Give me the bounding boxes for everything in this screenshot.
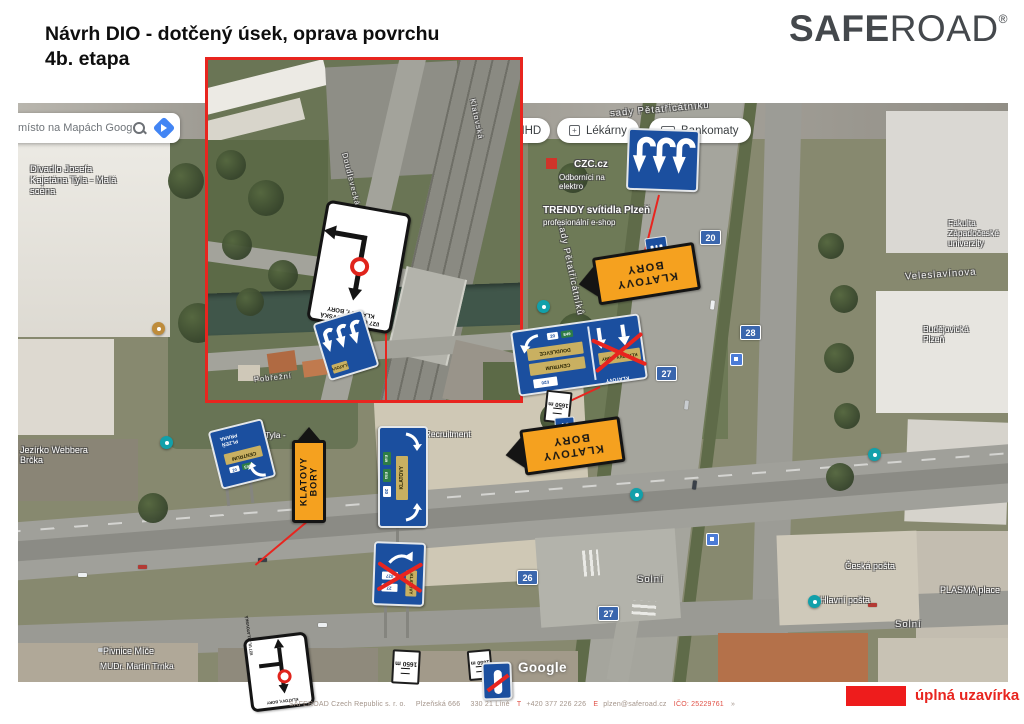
poi-pin-icon[interactable] [537, 300, 550, 313]
title-line1: Návrh DIO - dotčený úsek, oprava povrchu [45, 22, 439, 47]
poi-label-hlavni-posta[interactable]: Hlavní pošta [820, 595, 870, 605]
saferoad-logo: SAFEROAD® [789, 8, 1008, 50]
street-label-solni-1: Solní [637, 575, 664, 586]
poi-label-fakulta[interactable]: Fakulta Západočeské univerzity [948, 219, 1008, 248]
legend-closure-swatch [846, 686, 906, 706]
transit-stop-icon[interactable] [706, 533, 719, 546]
street-label-solni-2: Solní [895, 620, 922, 631]
footer-phone-prefix: T [517, 701, 521, 708]
route-shield-27b: 27 [598, 606, 619, 621]
distance-sign-3: 1650 m [391, 649, 421, 684]
poi-label-trnka[interactable]: MUDr. Martin Trnka [100, 662, 174, 672]
detail-inset-map: Doudlevecká Klatovská Pobřežní I/27 UL. … [205, 57, 523, 403]
poi-label-czc[interactable]: CZC.cz [574, 159, 608, 171]
closed-lanes-x-mark [587, 313, 650, 388]
restaurant-pin-icon[interactable] [152, 322, 165, 335]
poi-pin-icon[interactable] [868, 448, 881, 461]
poi-label-pivnice[interactable]: Pivnice Míče [103, 646, 154, 656]
czc-logo [546, 158, 557, 169]
street-label-veleslavinova: Veleslavínova [905, 268, 977, 284]
poi-label-plasma[interactable]: PLASMA place [940, 585, 1000, 595]
poi-label-theater1[interactable]: Divadlo Josefa Kajetána Tyla - Malá scén… [30, 165, 126, 198]
legend-closure-label: úplná uzavírka [915, 687, 1019, 704]
route-shield-28: 28 [740, 325, 761, 340]
footer-email: plzen@saferoad.cz [603, 701, 666, 708]
poi-label-czc-sub: Odborníci na elektro [559, 173, 629, 191]
route-shield-27a: 27 [656, 366, 677, 381]
pharmacy-icon: + [569, 125, 580, 136]
vertical-direction-panel: KLATOVY E49 E53 20 [378, 426, 428, 528]
one-way-end-sign [481, 661, 512, 700]
route-shield-20: 20 [700, 230, 721, 245]
lane-direction-sign-top [626, 128, 700, 192]
footer-phone: +420 377 226 226 [526, 701, 586, 708]
arrow-tip [298, 427, 320, 440]
poi-label-trendy[interactable]: TRENDY svítidla Plzeň [543, 205, 650, 217]
poi-pin-icon[interactable] [630, 488, 643, 501]
title-line2: 4b. etapa [45, 47, 439, 72]
google-search-box[interactable]: místo na Mapách Google [18, 113, 180, 143]
footer-ico: IČO: 25229761 [674, 701, 724, 708]
street-label-pobrezni: Pobřežní [254, 372, 293, 385]
search-input[interactable]: místo na Mapách Google [18, 122, 132, 134]
poi-label-ceska-posta[interactable]: Česká pošta [845, 561, 895, 571]
dio-plan-page: { "colors": {"accent_red":"#e8251f","leg… [0, 0, 1024, 724]
route-shield-26: 26 [517, 570, 538, 585]
directions-icon[interactable] [153, 117, 176, 140]
poi-label-trendy-sub: profesionální e-shop [543, 218, 616, 227]
page-title: Návrh DIO - dotčený úsek, oprava povrchu… [45, 22, 439, 72]
post-office-pin-icon[interactable] [808, 595, 821, 608]
detour-arrow-sign-3-vertical: KLATOVY BORY [292, 427, 326, 523]
transit-stop-icon[interactable] [730, 353, 743, 366]
poi-label-budejovicka[interactable]: Budějovická Plzeň [923, 325, 985, 345]
footer-company: SAFEROAD Czech Republic s. r. o. [289, 701, 406, 708]
footer-email-prefix: E [593, 701, 598, 708]
footer-city: 330 21 Líně [471, 701, 510, 708]
google-watermark: Google [518, 660, 567, 675]
footer-chevron: » [731, 701, 735, 708]
search-icon[interactable] [132, 121, 146, 135]
chip-lekarny[interactable]: +Lékárny [557, 118, 639, 143]
poi-pin-icon[interactable] [160, 436, 173, 449]
crossed-exit-sign: I/27 27 KLATOVY [372, 541, 426, 607]
closed-x-mark [376, 545, 424, 605]
footer-street: Plzeňská 666 [416, 701, 460, 708]
poi-label-webbera[interactable]: Jezírko Webbera Brčka [20, 445, 100, 466]
